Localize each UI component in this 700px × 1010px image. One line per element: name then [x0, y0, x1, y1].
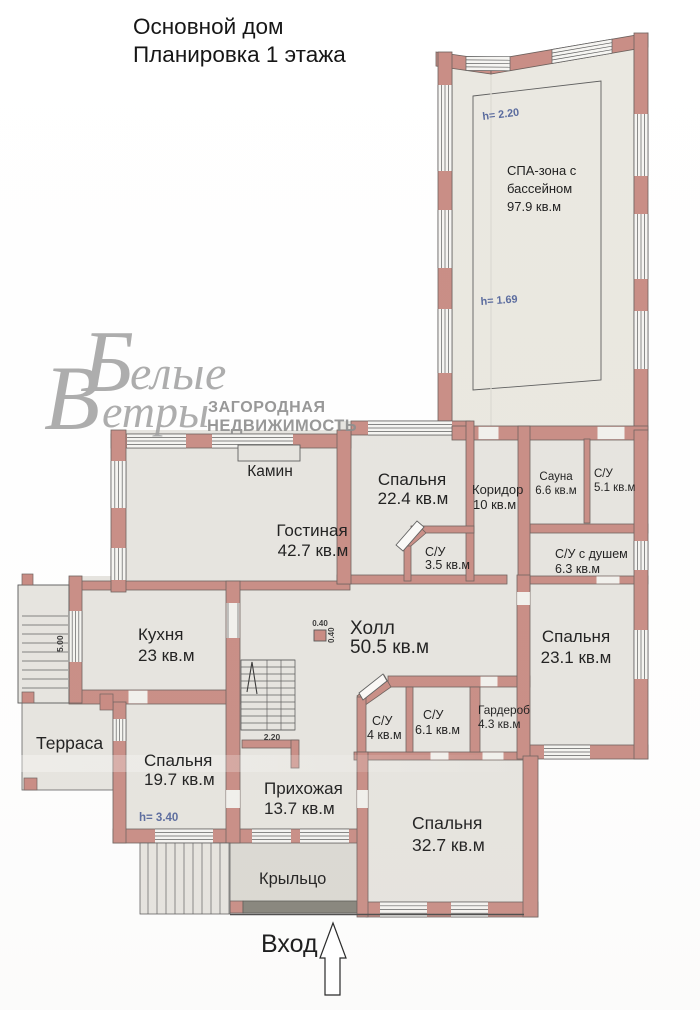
svg-text:0.40: 0.40	[327, 627, 336, 643]
svg-text:6.3 кв.м: 6.3 кв.м	[555, 562, 600, 576]
svg-text:32.7 кв.м: 32.7 кв.м	[412, 835, 485, 855]
svg-text:С/У: С/У	[372, 714, 393, 728]
svg-text:Вход: Вход	[261, 930, 318, 958]
svg-text:С/У: С/У	[423, 708, 444, 722]
svg-text:Спальня: Спальня	[144, 751, 212, 770]
svg-text:бассейном: бассейном	[507, 181, 572, 196]
svg-text:23 кв.м: 23 кв.м	[138, 646, 195, 665]
svg-text:h= 1.69: h= 1.69	[480, 293, 518, 308]
svg-text:ЗАГОРОДНАЯ: ЗАГОРОДНАЯ	[208, 399, 326, 416]
svg-text:С/У с душем: С/У с душем	[555, 547, 628, 561]
svg-text:В: В	[44, 347, 100, 449]
svg-text:Спальня: Спальня	[542, 627, 610, 646]
svg-text:Крыльцо: Крыльцо	[259, 870, 326, 888]
svg-text:Прихожая: Прихожая	[264, 779, 343, 798]
svg-text:Спальня: Спальня	[412, 813, 482, 833]
svg-text:5.00: 5.00	[55, 635, 65, 652]
svg-text:10 кв.м: 10 кв.м	[473, 497, 516, 512]
svg-text:5.1 кв.м: 5.1 кв.м	[594, 482, 636, 494]
svg-text:19.7 кв.м: 19.7 кв.м	[144, 770, 215, 789]
svg-text:Кухня: Кухня	[138, 625, 184, 644]
svg-text:Камин: Камин	[247, 463, 293, 480]
svg-text:h= 3.40: h= 3.40	[139, 812, 178, 824]
svg-text:0.40: 0.40	[312, 619, 328, 628]
svg-text:Основной дом: Основной дом	[133, 14, 284, 39]
svg-text:Коридор: Коридор	[472, 482, 523, 497]
svg-text:6.6 кв.м: 6.6 кв.м	[535, 485, 577, 497]
svg-text:Гостиная: Гостиная	[276, 521, 347, 540]
svg-text:4.3 кв.м: 4.3 кв.м	[478, 717, 521, 731]
svg-text:Гардероб: Гардероб	[478, 703, 530, 717]
svg-text:50.5 кв.м: 50.5 кв.м	[350, 637, 429, 658]
svg-text:23.1 кв.м: 23.1 кв.м	[541, 648, 612, 667]
svg-text:97.9 кв.м: 97.9 кв.м	[507, 199, 561, 214]
svg-text:22.4 кв.м: 22.4 кв.м	[378, 489, 449, 508]
svg-text:Планировка 1 этажа: Планировка 1 этажа	[133, 42, 346, 67]
svg-text:4 кв.м: 4 кв.м	[367, 728, 402, 742]
svg-text:Спальня: Спальня	[378, 470, 446, 489]
svg-text:Сауна: Сауна	[539, 471, 573, 483]
svg-text:НЕДВИЖИМОСТЬ: НЕДВИЖИМОСТЬ	[207, 417, 357, 435]
svg-text:2.20: 2.20	[264, 732, 281, 742]
svg-text:13.7 кв.м: 13.7 кв.м	[264, 799, 335, 818]
svg-text:Терраса: Терраса	[36, 733, 103, 753]
svg-text:С/У: С/У	[425, 545, 446, 559]
svg-text:Холл: Холл	[350, 618, 395, 639]
svg-text:42.7 кв.м: 42.7 кв.м	[278, 541, 349, 560]
svg-text:3.5 кв.м: 3.5 кв.м	[425, 558, 470, 572]
svg-text:С/У: С/У	[594, 468, 614, 480]
svg-text:етры: етры	[102, 386, 209, 437]
svg-text:СПА-зона с: СПА-зона с	[507, 163, 577, 178]
svg-text:6.1 кв.м: 6.1 кв.м	[415, 723, 460, 737]
